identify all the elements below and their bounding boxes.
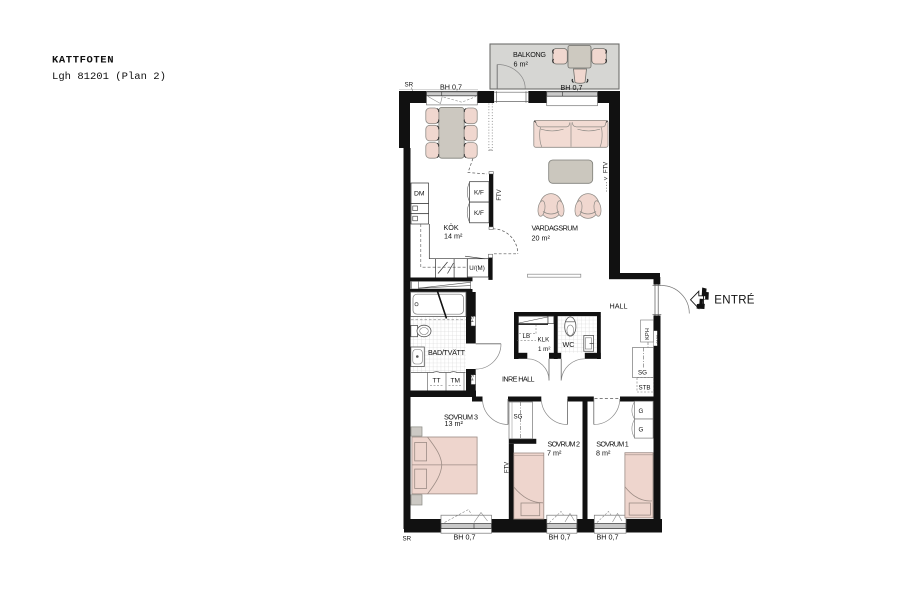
- svg-text:SR: SR: [405, 82, 414, 89]
- svg-text:K/F: K/F: [474, 210, 484, 217]
- svg-text:BALKONG: BALKONG: [513, 50, 546, 59]
- svg-text:LB: LB: [523, 333, 531, 340]
- svg-text:SOVRUM 2: SOVRUM 2: [548, 440, 581, 449]
- svg-text:SOVRUM 1: SOVRUM 1: [596, 440, 629, 449]
- svg-text:KATTFOTEN: KATTFOTEN: [52, 55, 114, 67]
- svg-text:8120: 8120: [655, 334, 660, 344]
- svg-text:WC: WC: [563, 340, 575, 349]
- svg-text:SG: SG: [514, 414, 523, 421]
- svg-text:G: G: [639, 427, 644, 434]
- svg-text:BH 0,7: BH 0,7: [440, 82, 462, 91]
- svg-text:HALL: HALL: [610, 302, 628, 311]
- svg-text:SR: SR: [403, 536, 412, 543]
- svg-text:FTV: FTV: [604, 162, 610, 173]
- svg-text:SG: SG: [638, 370, 647, 377]
- svg-text:BH 0,7: BH 0,7: [454, 533, 476, 542]
- svg-text:FTV: FTV: [497, 189, 503, 200]
- svg-text:20 m²: 20 m²: [532, 234, 551, 243]
- svg-text:FS: FS: [469, 316, 475, 322]
- svg-text:14 m²: 14 m²: [444, 232, 463, 241]
- svg-text:13 m²: 13 m²: [445, 419, 464, 428]
- svg-text:VARDAGSRUM: VARDAGSRUM: [532, 224, 579, 233]
- svg-text:KLK: KLK: [538, 337, 551, 344]
- svg-text:DM: DM: [414, 191, 425, 198]
- svg-text:ENTRÉ: ENTRÉ: [714, 294, 755, 307]
- svg-text:KÖK: KÖK: [444, 223, 459, 232]
- svg-text:BAD/TVÄTT: BAD/TVÄTT: [428, 348, 466, 357]
- svg-text:K/F: K/F: [474, 190, 484, 197]
- svg-text:7 m²: 7 m²: [547, 449, 562, 458]
- svg-text:STB: STB: [639, 385, 651, 392]
- svg-text:1 m²: 1 m²: [538, 346, 550, 353]
- svg-text:BH 0,7: BH 0,7: [597, 533, 619, 542]
- svg-text:FS: FS: [469, 374, 475, 380]
- svg-text:INRE HALL: INRE HALL: [502, 375, 535, 384]
- svg-text:TT: TT: [433, 378, 441, 385]
- svg-text:FTV: FTV: [505, 462, 511, 473]
- svg-text:U/(M): U/(M): [469, 265, 484, 272]
- svg-text:BH 0,7: BH 0,7: [549, 533, 571, 542]
- svg-text:G: G: [639, 408, 644, 415]
- svg-text:6 m²: 6 m²: [514, 60, 529, 69]
- svg-text:Lgh 81201 (Plan 2): Lgh 81201 (Plan 2): [52, 71, 166, 83]
- svg-text:BH 0,7: BH 0,7: [561, 83, 583, 92]
- svg-text:TM: TM: [451, 378, 461, 385]
- svg-text:KPH: KPH: [645, 328, 651, 340]
- svg-text:8 m²: 8 m²: [596, 449, 611, 458]
